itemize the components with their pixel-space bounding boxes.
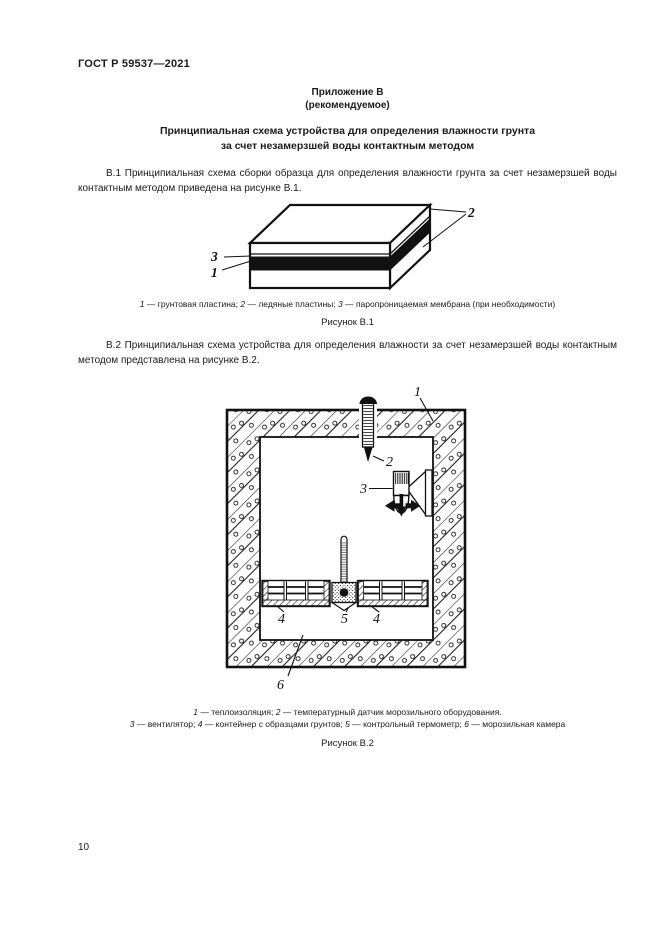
paragraph-b1: В.1 Принципиальная схема сборки образца … — [78, 166, 617, 196]
fig2-label-5: 5 — [341, 612, 348, 627]
figure-b1-caption: 1 — грунтовая пластина; 2 — ледяные плас… — [78, 298, 617, 310]
page-number: 10 — [78, 842, 89, 853]
figure-b2-caption: 1 — теплоизоляция; 2 — температурный дат… — [78, 706, 617, 730]
annex-note: (рекомендуемое) — [78, 99, 617, 112]
document-page: { "header": { "doc_code": "ГОСТ Р 59537—… — [0, 0, 661, 935]
figure-b2-diagram: 1 2 3 4 5 4 6 — [180, 378, 500, 694]
figure-b2-title: Рисунок В.2 — [78, 738, 617, 749]
figure-b2-caption-line2: 3 — вентилятор; 4 — контейнер с образцам… — [78, 718, 617, 730]
annex-label: Приложение В — [78, 86, 617, 99]
sensor-cap — [360, 397, 378, 405]
page-title-line2: за счет незамерзшей воды контактным мето… — [78, 139, 617, 154]
soil-plate-front-band — [250, 257, 390, 271]
sample-container-right — [358, 581, 429, 607]
figure-b1-title: Рисунок В.1 — [78, 317, 617, 328]
doc-code: ГОСТ Р 59537—2021 — [78, 58, 190, 70]
fig2-label-2: 2 — [386, 455, 393, 470]
leader-line-2a — [430, 209, 466, 212]
page-title-line1: Принципиальная схема устройства для опре… — [78, 124, 617, 139]
fig2-label-1: 1 — [414, 385, 421, 400]
fig2-label-4a: 4 — [278, 612, 285, 627]
fan-mount-plate — [426, 470, 433, 516]
fig2-label-3: 3 — [359, 482, 367, 497]
figure-b2-caption-line1: 1 — теплоизоляция; 2 — температурный дат… — [78, 706, 617, 718]
paragraph-b2: В.2 Принципиальная схема устройства для … — [78, 338, 617, 368]
leader-line-3 — [224, 256, 251, 257]
figure-b1-diagram: 3 1 2 — [200, 196, 490, 298]
fig1-label-1: 1 — [211, 265, 218, 280]
fig1-label-3: 3 — [210, 249, 218, 264]
fig2-label-4b: 4 — [373, 612, 380, 627]
leader-line-1 — [222, 261, 251, 270]
fig1-label-2: 2 — [467, 205, 475, 220]
page-title: Принципиальная схема устройства для опре… — [78, 124, 617, 153]
sample-container-left — [262, 581, 330, 607]
thermometer-bulb — [340, 588, 349, 597]
fig2-label-6: 6 — [277, 678, 284, 693]
